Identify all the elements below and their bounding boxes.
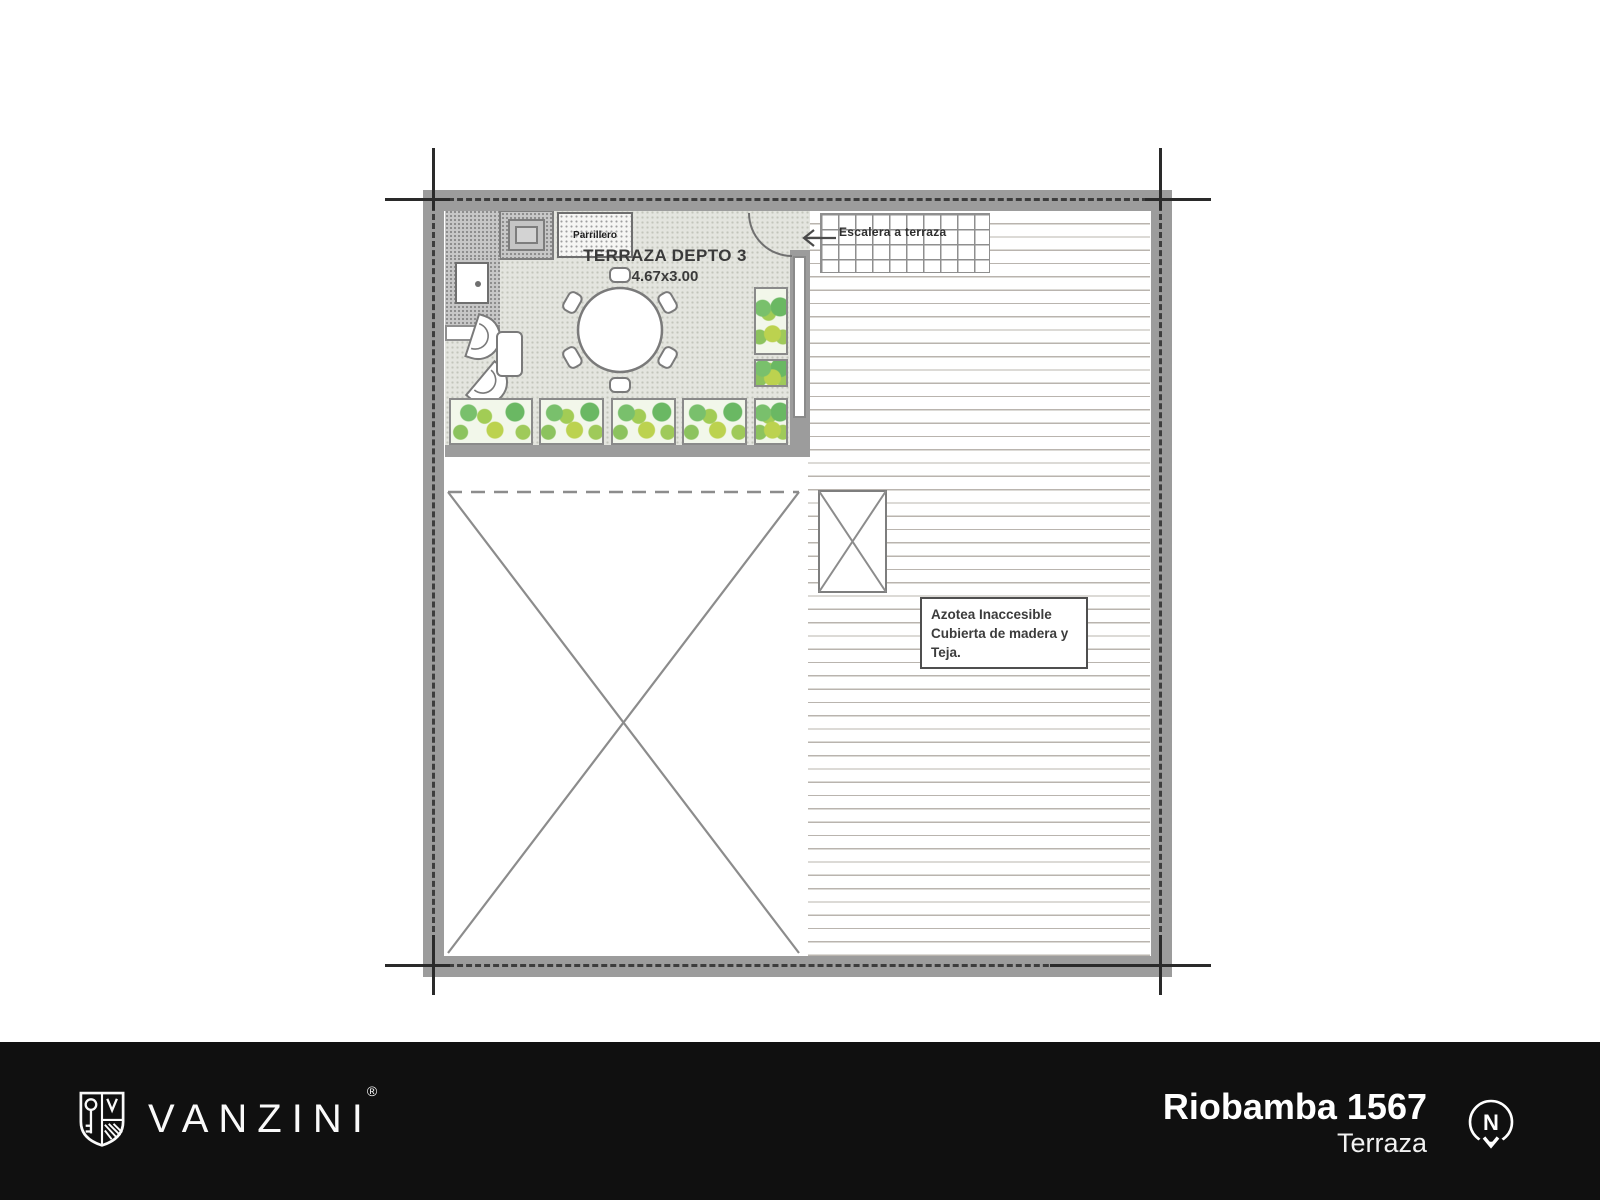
registered-mark: ®: [367, 1083, 377, 1099]
terrace-gate: [793, 256, 806, 418]
roof-note-line: Azotea Inaccesible: [931, 606, 1077, 625]
stairs-to-terrace: Escalera a terraza: [820, 213, 990, 273]
roof-note-box: Azotea Inaccesible Cubierta de madera y …: [920, 597, 1088, 669]
brand-text: VANZINI: [148, 1097, 373, 1141]
terrace-title: TERRAZA DEPTO 3: [545, 246, 785, 266]
roof-note-line: Cubierta de madera y: [931, 625, 1077, 644]
planter-box: [611, 398, 676, 445]
vanzini-logo: VANZINI®: [78, 1090, 383, 1148]
wall-axis-line: [430, 198, 1166, 201]
side-table: [497, 332, 522, 376]
terrace-dividing-wall: [790, 250, 810, 457]
address: Riobamba 1567: [1163, 1086, 1427, 1127]
stairs-label: Escalera a terraza: [839, 225, 946, 239]
axis-tick: [385, 198, 450, 201]
planter-box: [754, 398, 788, 445]
dining-table: [561, 268, 678, 392]
planter-box: [682, 398, 747, 445]
plan-overlay: [0, 0, 1600, 1200]
roof-deck-area: [808, 211, 1150, 957]
floor-plan: Escalera a terraza Parrillero: [0, 0, 1600, 1050]
logo-v-letter: [107, 1099, 117, 1111]
wall-axis-line: [432, 196, 435, 968]
address-block: Riobamba 1567 Terraza: [1163, 1086, 1427, 1159]
axis-tick: [1145, 198, 1211, 201]
axis-tick: [385, 964, 450, 967]
key-icon: [86, 1099, 97, 1133]
inaccessible-area-x: [448, 492, 799, 953]
brand-name: VANZINI®: [148, 1097, 383, 1142]
planter-box: [449, 398, 533, 445]
planter-box: [754, 287, 788, 355]
page: Escalera a terraza Parrillero: [0, 0, 1600, 1200]
terrace-dimensions: 4.67x3.00: [545, 268, 785, 285]
wall-axis-line: [1159, 196, 1162, 968]
shield-logo-icon: [78, 1090, 126, 1148]
planter-box: [539, 398, 604, 445]
roof-note-line: Teja.: [931, 644, 1077, 663]
planter-box: [754, 359, 788, 387]
compass-letter: N: [1483, 1110, 1499, 1135]
terrace-bottom-wall: [445, 445, 810, 457]
compass-icon: N: [1462, 1096, 1520, 1156]
plan-level: Terraza: [1163, 1128, 1427, 1159]
terrace-room: Parrillero: [445, 210, 810, 457]
axis-tick: [1050, 964, 1211, 967]
